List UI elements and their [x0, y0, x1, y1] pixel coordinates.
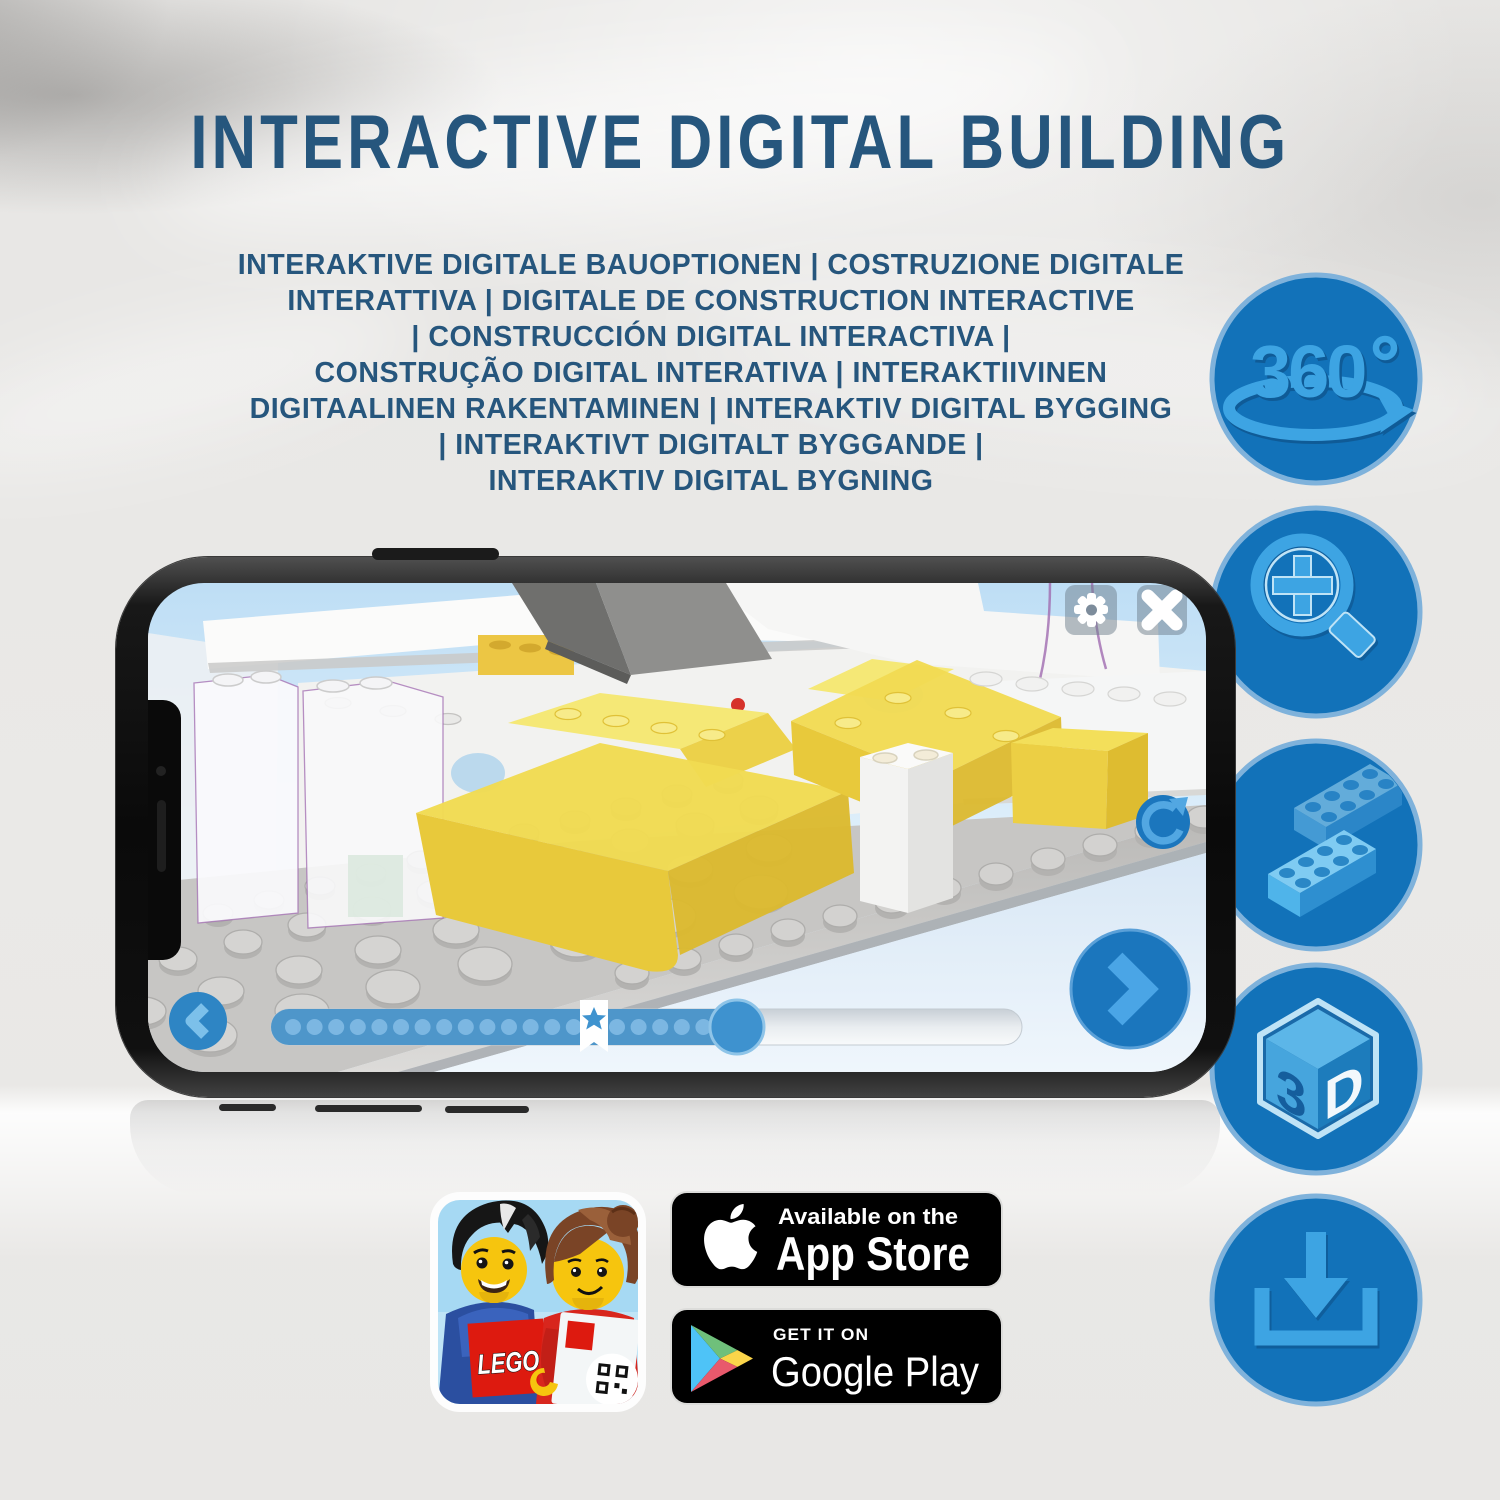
svg-text:Google Play: Google Play — [771, 1348, 979, 1395]
svg-text:360: 360 — [1250, 330, 1365, 413]
svg-text:GET IT ON: GET IT ON — [773, 1325, 869, 1344]
svg-text:App Store: App Store — [776, 1227, 970, 1280]
svg-text:Available on the: Available on the — [778, 1204, 958, 1229]
svg-text:LEGO: LEGO — [476, 1345, 540, 1380]
